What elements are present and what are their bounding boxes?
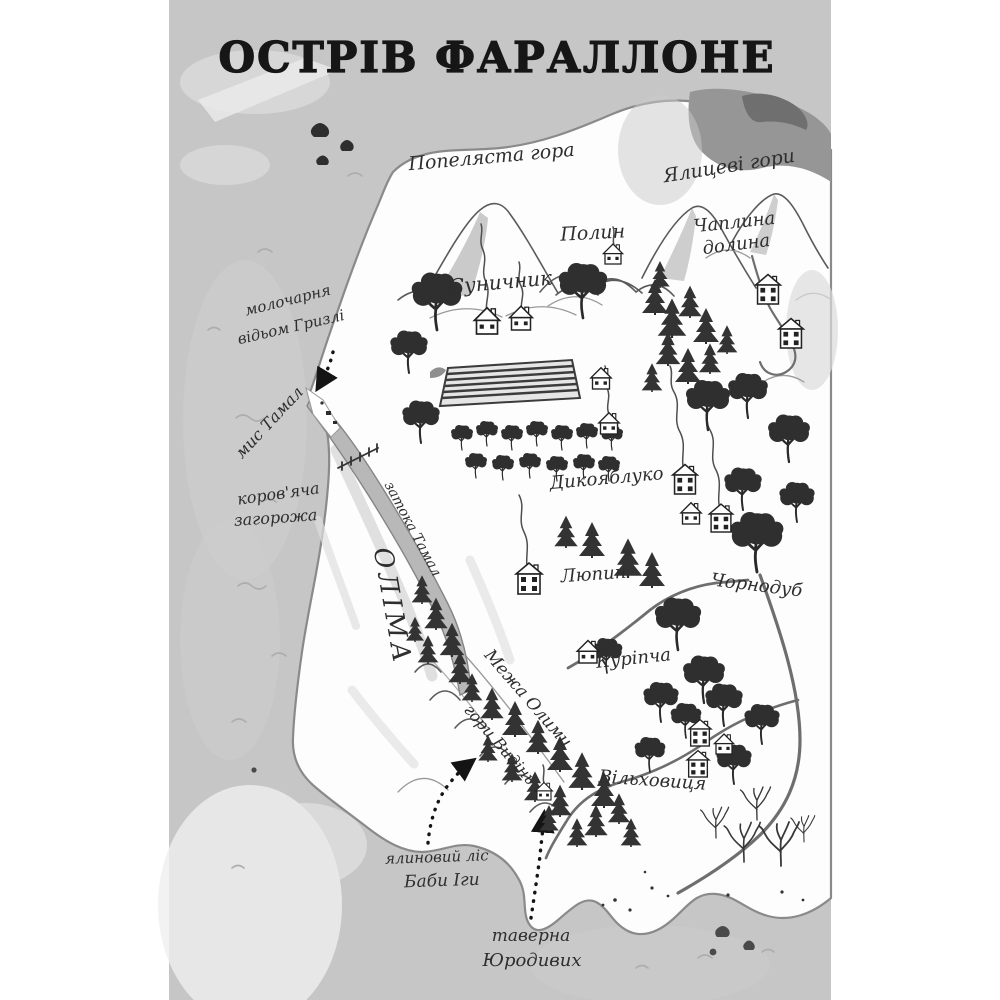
map-title: ОСТРІВ ФАРАЛЛОНЕ bbox=[218, 33, 775, 82]
label-tavern: Юродивих bbox=[481, 950, 581, 971]
label-spruce-forest: Баби Іги bbox=[403, 870, 480, 893]
label-polyn: Полин bbox=[559, 220, 626, 245]
plowed-field bbox=[430, 360, 580, 406]
book-map-page-photo: ОСТРІВ ФАРАЛЛОНЕ Попеляста гора Ялицеві … bbox=[0, 0, 1000, 1000]
island-map-svg: ОСТРІВ ФАРАЛЛОНЕ Попеляста гора Ялицеві … bbox=[0, 0, 1000, 1000]
label-tavern: таверна bbox=[492, 926, 570, 946]
label-spruce-forest: ялиновий ліс bbox=[385, 846, 490, 868]
